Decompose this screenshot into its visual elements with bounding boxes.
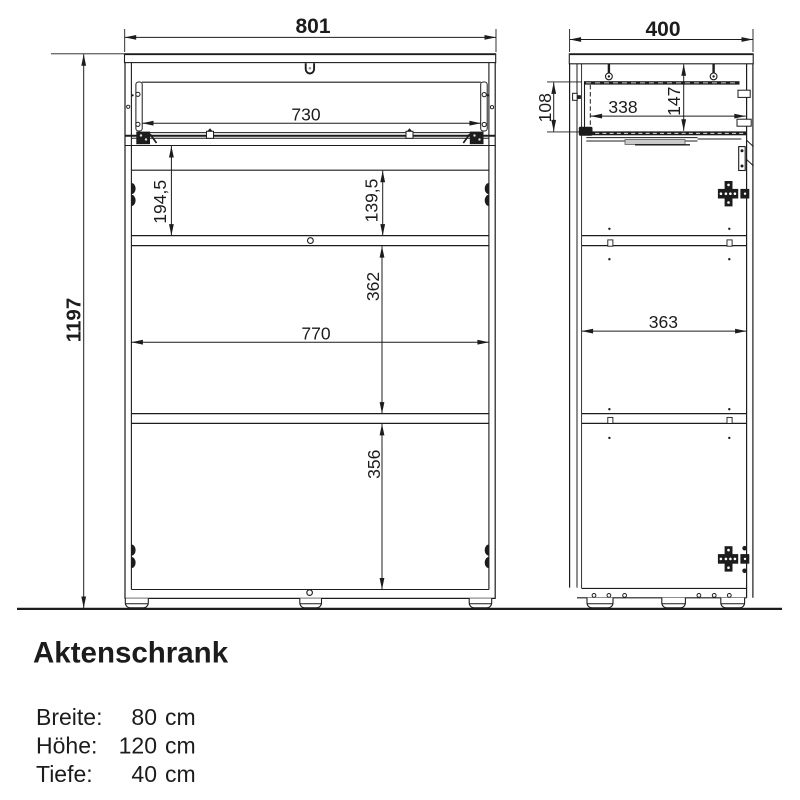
svg-text:139,5: 139,5 [362, 179, 382, 223]
svg-text:362: 362 [363, 272, 383, 301]
svg-text:1197: 1197 [63, 298, 86, 342]
svg-text:Höhe:: Höhe: [36, 733, 97, 759]
svg-text:cm: cm [165, 704, 196, 730]
svg-text:Breite:: Breite: [36, 704, 102, 730]
svg-text:147: 147 [664, 87, 684, 116]
svg-text:Aktenschrank: Aktenschrank [33, 637, 229, 670]
svg-text:cm: cm [165, 761, 196, 787]
svg-text:120: 120 [119, 733, 157, 759]
svg-text:40: 40 [131, 761, 157, 787]
svg-text:400: 400 [645, 18, 680, 41]
svg-text:Tiefe:: Tiefe: [36, 761, 93, 787]
svg-text:194,5: 194,5 [150, 180, 170, 224]
svg-text:801: 801 [295, 15, 330, 38]
svg-text:80: 80 [131, 704, 157, 730]
svg-text:363: 363 [649, 312, 678, 332]
svg-text:730: 730 [291, 104, 320, 124]
svg-text:108: 108 [535, 93, 555, 122]
svg-text:356: 356 [364, 450, 384, 479]
svg-text:338: 338 [608, 97, 637, 117]
svg-text:cm: cm [165, 733, 196, 759]
svg-text:770: 770 [301, 323, 330, 343]
